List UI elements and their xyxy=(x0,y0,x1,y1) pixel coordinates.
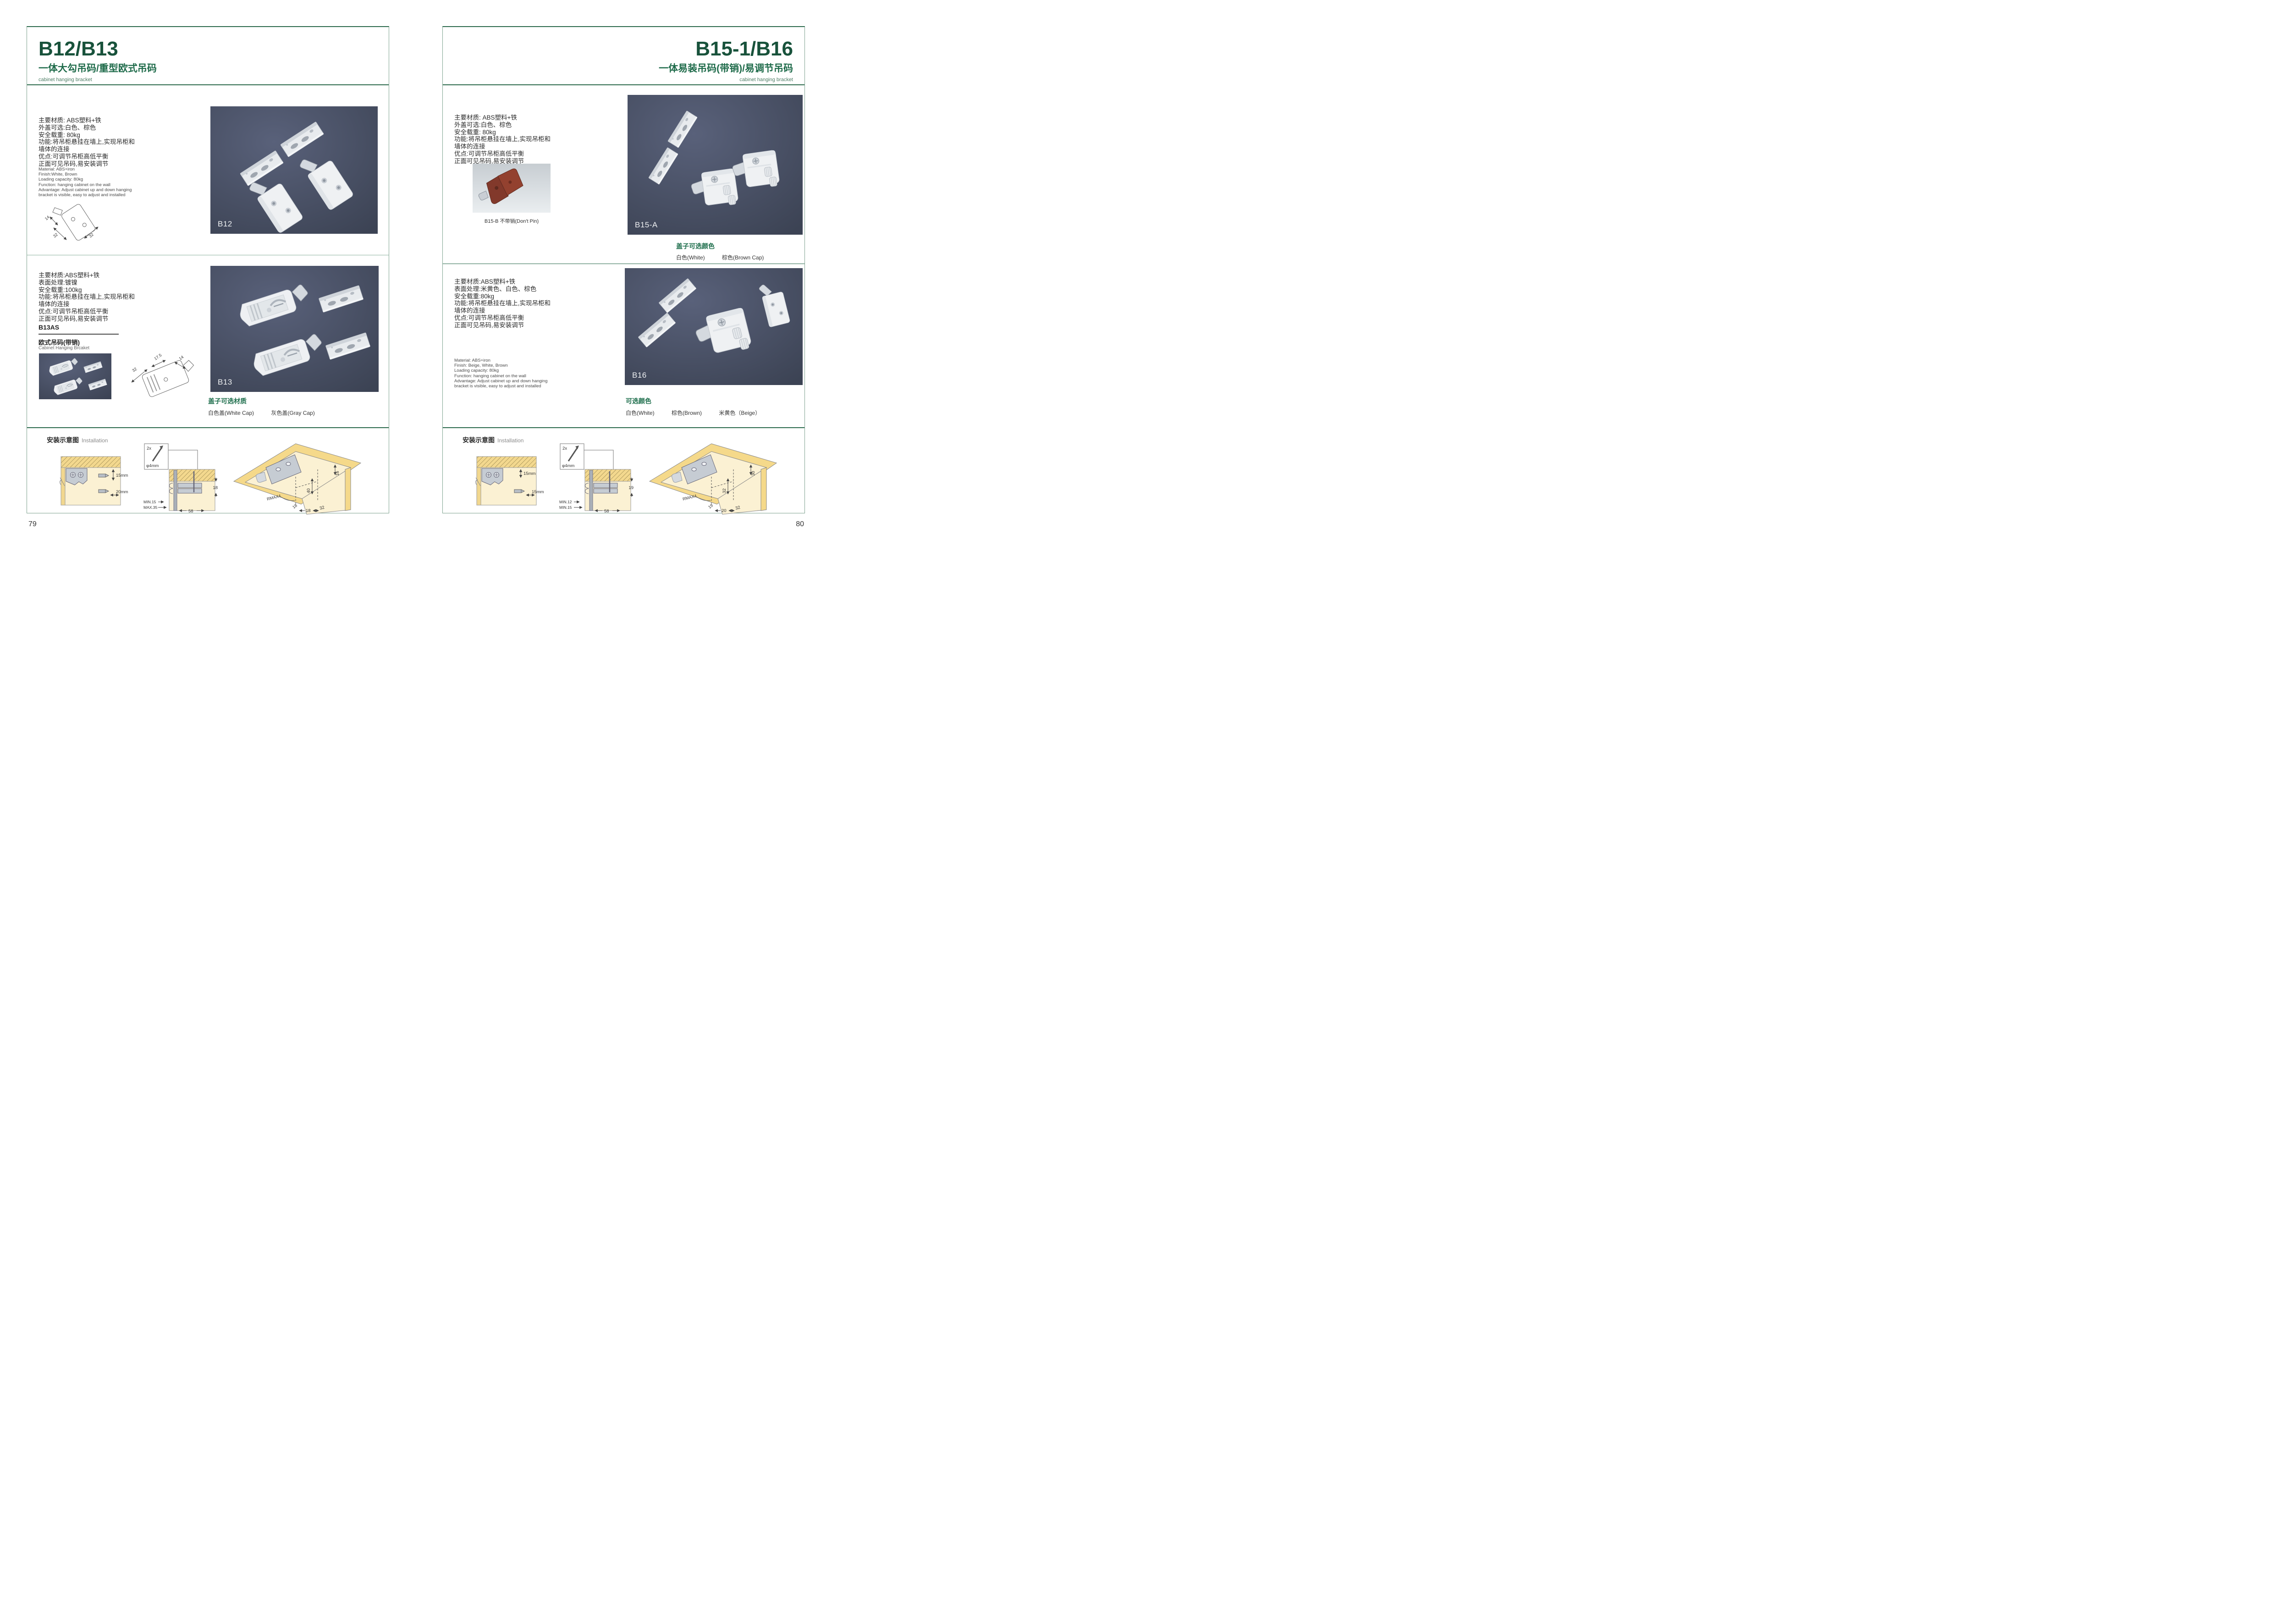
b13as-product-photo xyxy=(39,353,111,399)
dim-label: 32 xyxy=(52,232,59,238)
spec-line: 优点:可调节吊柜高低平衡 xyxy=(39,308,135,315)
page-subtitle: 一体大勾吊码/重型欧式吊码 xyxy=(39,64,157,73)
spec-line: bracket is visible, easy to adjust and i… xyxy=(39,193,132,198)
dim-label: RMAX4 xyxy=(266,494,281,501)
page-left: B12/B13 一体大勾吊码/重型欧式吊码 cabinet hanging br… xyxy=(27,26,389,513)
spec-line: 功能:将吊柜悬挂在墙上,实现吊柜和 xyxy=(39,293,135,301)
section-divider xyxy=(443,264,804,264)
spec-line: Advantage: Adjust cabinet up and down ha… xyxy=(39,187,132,193)
spec-line: 安全载重:80kg xyxy=(454,293,551,300)
screw-count: 2x xyxy=(147,446,151,451)
spec-line: Finish: Beige, White, Brown xyxy=(454,363,547,368)
b13-photo-graphic xyxy=(210,266,379,392)
b15a-photo-graphic xyxy=(628,95,803,235)
page-subtitle: 一体易装吊码(带销)/易调节吊码 xyxy=(659,64,793,73)
spec-line: 优点:可调节吊柜高低平衡 xyxy=(39,153,135,160)
spec-line: 功能:将吊柜悬挂在墙上,实现吊柜和 xyxy=(39,138,135,146)
b13as-photo-graphic xyxy=(39,353,111,399)
b13-specs-cn: 主要材质:ABS塑料+铁 表面处理:镀镍 安全载重:100kg 功能:将吊柜悬挂… xyxy=(39,272,135,323)
b15a-product-photo: B15-A xyxy=(628,95,803,235)
spec-line: 表面处理:米黄色、白色、棕色 xyxy=(454,286,551,293)
dim-label: 18 xyxy=(292,503,298,510)
screw-diameter: φ4mm xyxy=(146,463,159,468)
spec-line: bracket is visible, easy to adjust and i… xyxy=(454,384,547,389)
b16-product-photo: B16 xyxy=(625,268,803,385)
header-divider xyxy=(443,84,804,85)
b12-specs-en: Material: ABS+iron Finish:White, Brown L… xyxy=(39,167,132,198)
spec-line: 外盖可选:白色、棕色 xyxy=(454,121,551,129)
screw-count: 2x xyxy=(562,446,567,451)
b16-photo-graphic xyxy=(625,268,803,385)
cap-option: 白色盖(White Cap) xyxy=(208,410,254,416)
photo-label: B13 xyxy=(218,378,232,387)
installation-divider xyxy=(27,427,389,428)
header-divider xyxy=(27,84,389,85)
cap-color-options: 白色(White) 棕色(Brown Cap) xyxy=(676,253,779,261)
spec-line: 优点:可调节吊柜高低平衡 xyxy=(454,314,551,322)
dim-label: MIN.15 xyxy=(559,505,572,510)
spec-line: 外盖可选:白色、棕色 xyxy=(39,124,135,132)
dim-label: 15mm xyxy=(523,471,535,476)
dim-label: 14 xyxy=(178,355,184,361)
page-subtitle-en: cabinet hanging bracket xyxy=(39,77,92,83)
dim-label: MAX.35 xyxy=(143,505,158,510)
dim-label: 17.5 xyxy=(153,352,162,361)
b12-specs-cn: 主要材质: ABS塑料+铁 外盖可选:白色、棕色 安全载重: 80kg 功能:将… xyxy=(39,117,135,168)
dim-label: 40 xyxy=(306,488,311,493)
cap-option: 白色(White) xyxy=(676,254,705,261)
spec-line: Loading capacity: 80kg xyxy=(39,177,132,182)
dim-label: RMAX4 xyxy=(682,494,697,501)
color-option: 米黄色（Beige） xyxy=(719,410,760,416)
photo-label: B12 xyxy=(218,220,232,229)
installation-title-en: Installation xyxy=(82,437,108,444)
b13as-model-code: B13AS xyxy=(39,324,59,331)
installation-diagram-3d: 16 40 RMAX4 18 18 32 xyxy=(227,436,364,515)
dim-label: 19 xyxy=(707,503,714,510)
spec-line: Finish:White, Brown xyxy=(39,172,132,177)
b12-technical-drawing: 14 32 32 xyxy=(36,199,107,250)
cap-option: 棕色(Brown Cap) xyxy=(722,254,764,261)
spec-line: Advantage: Adjust cabinet up and down ha… xyxy=(454,379,547,384)
dim-label: 14 xyxy=(44,215,50,221)
spec-line: 正面可见吊码,易安装调节 xyxy=(454,322,551,329)
spec-line: 安全载重:100kg xyxy=(39,286,135,294)
color-options: 白色(White) 棕色(Brown) 米黄色（Beige） xyxy=(626,409,776,417)
spec-line: 墙体的连接 xyxy=(39,301,135,308)
b15b-photo-graphic xyxy=(473,164,551,213)
spec-line: Material: ABS+iron xyxy=(39,167,132,172)
installation-diagram-3d: 30 32 RMAX4 19 20 32 xyxy=(643,436,780,515)
catalog-spread: B12/B13 一体大勾吊码/重型欧式吊码 cabinet hanging br… xyxy=(0,0,830,541)
dim-label: 20mm xyxy=(116,490,128,495)
spec-line: 功能:将吊柜悬挂在墙上,实现吊柜和 xyxy=(454,300,551,307)
color-options-title: 可选颜色 xyxy=(626,396,651,406)
color-option: 白色(White) xyxy=(626,410,655,416)
spec-line: Function: hanging cabinet on the wall xyxy=(454,374,547,379)
installation-diagram-side: 15mm 15mm xyxy=(470,451,551,511)
dim-label: 15mm xyxy=(116,473,128,478)
screw-diameter: φ4mm xyxy=(562,463,574,468)
color-option: 棕色(Brown) xyxy=(672,410,702,416)
spec-line: Material: ABS+iron xyxy=(454,358,547,363)
spec-line: 主要材质:ABS塑料+铁 xyxy=(454,278,551,286)
page-number-right: 80 xyxy=(789,520,804,528)
dim-label: 15mm xyxy=(532,490,544,495)
installation-title-cn: 安装示意图 xyxy=(47,436,79,444)
dim-label: 19 xyxy=(628,485,634,490)
b13as-technical-drawing: 32 17.5 14 xyxy=(123,350,206,402)
b13as-name-cn: 欧式吊码(带销) xyxy=(39,337,80,347)
spec-line: 墙体的连接 xyxy=(454,307,551,314)
dim-label: 18 xyxy=(213,485,218,490)
installation-heading: 安装示意图Installation xyxy=(463,435,523,445)
spec-line: 墙体的连接 xyxy=(39,146,135,153)
b12-photo-graphic xyxy=(210,106,378,234)
cap-option: 灰色盖(Gray Cap) xyxy=(271,410,314,416)
page-title: B15-1/B16 xyxy=(695,39,793,59)
page-subtitle-en: cabinet hanging bracket xyxy=(739,77,793,83)
dim-label: 20 xyxy=(722,508,727,513)
cap-material-title: 盖子可选材质 xyxy=(208,396,247,406)
spec-line: 正面可见吊码,易安装调节 xyxy=(39,315,135,323)
b16-specs-en: Material: ABS+iron Finish: Beige, White,… xyxy=(454,358,547,389)
photo-label: B15-A xyxy=(635,220,658,230)
spec-line: 功能:将吊柜悬挂在墙上,实现吊柜和 xyxy=(454,136,551,143)
dim-label: MIN.15 xyxy=(143,500,156,504)
installation-divider xyxy=(443,427,804,428)
spec-line: 主要材质: ABS塑料+铁 xyxy=(39,117,135,124)
dim-label: 30 xyxy=(751,471,756,476)
b15b-caption: B15-B 不带销(Don't Pin) xyxy=(461,217,562,225)
page-right: B15-1/B16 一体易装吊码(带销)/易调节吊码 cabinet hangi… xyxy=(442,26,805,513)
b13as-name-en: Cabinet Hanging Brcaket xyxy=(39,346,89,351)
spec-line: 主要材质: ABS塑料+铁 xyxy=(454,114,551,121)
installation-diagram-section: 2x φ4mm 18 MIN.15 MAX.35 58 xyxy=(143,441,218,515)
photo-label: B16 xyxy=(632,371,647,380)
dim-label: MIN.12 xyxy=(559,500,572,504)
installation-diagram-side: 15mm 20mm xyxy=(55,451,135,511)
b12-product-photo: B12 xyxy=(210,106,378,234)
model-underline xyxy=(39,334,119,335)
cap-material-options: 白色盖(White Cap) 灰色盖(Gray Cap) xyxy=(208,409,331,417)
b13-product-photo: B13 xyxy=(210,266,379,392)
page-number-left: 79 xyxy=(28,520,37,528)
dim-label: 16 xyxy=(335,471,340,476)
spec-line: 优点:可调节吊柜高低平衡 xyxy=(454,150,551,158)
dim-label: 58 xyxy=(604,509,609,514)
spec-line: Loading capacity: 80kg xyxy=(454,368,547,373)
spec-line: 安全载重: 80kg xyxy=(454,129,551,136)
b15-specs-cn: 主要材质: ABS塑料+铁 外盖可选:白色、棕色 安全载重: 80kg 功能:将… xyxy=(454,114,551,165)
installation-title-en: Installation xyxy=(497,437,523,444)
spec-line: 安全载重: 80kg xyxy=(39,132,135,139)
spec-line: 表面处理:镀镍 xyxy=(39,279,135,286)
spec-line: 墙体的连接 xyxy=(454,143,551,150)
installation-title-cn: 安装示意图 xyxy=(463,436,495,444)
spec-line: 主要材质:ABS塑料+铁 xyxy=(39,272,135,279)
installation-diagram-section: 2x φ4mm 19 MIN.12 MIN.15 58 xyxy=(558,441,634,515)
spec-line: Function: hanging cabinet on the wall xyxy=(39,182,132,187)
b15b-product-photo xyxy=(473,164,551,213)
section-divider xyxy=(27,255,389,255)
dim-label: 32 xyxy=(722,488,727,493)
cap-color-title: 盖子可选颜色 xyxy=(676,242,715,251)
dim-label: 58 xyxy=(188,509,193,514)
b16-specs-cn: 主要材质:ABS塑料+铁 表面处理:米黄色、白色、棕色 安全载重:80kg 功能… xyxy=(454,278,551,329)
installation-heading: 安装示意图Installation xyxy=(47,435,108,445)
dim-label: 32 xyxy=(131,367,138,373)
page-title: B12/B13 xyxy=(39,39,118,59)
dim-label: 18 xyxy=(306,508,311,513)
